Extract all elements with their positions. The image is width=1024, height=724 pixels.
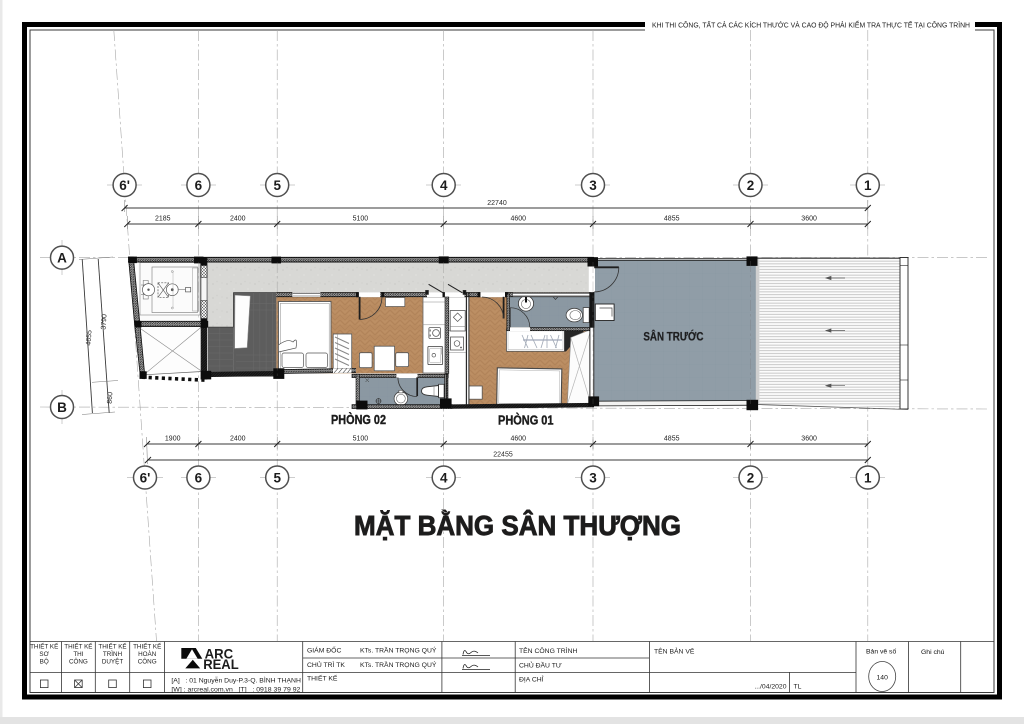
svg-text:SÂN TRƯỚC: SÂN TRƯỚC [643,331,703,344]
svg-text:.../04/2020: .../04/2020 [754,684,786,691]
svg-text:PHÒNG 01: PHÒNG 01 [498,413,554,428]
svg-text:THI: THI [73,651,83,658]
svg-text:3790: 3790 [100,314,108,330]
svg-text:4855: 4855 [664,436,680,443]
svg-text:860: 860 [107,392,115,404]
svg-text:PHÒNG 02: PHÒNG 02 [331,412,386,427]
svg-text:5: 5 [273,470,281,485]
svg-text:[W] : arcreal.com.vn [T] :: [W] : arcreal.com.vn [T] : 0918 39 79 92 [171,687,301,694]
svg-text:6: 6 [195,178,203,193]
svg-text:CHỦ TRÌ TK: CHỦ TRÌ TK [307,660,345,669]
svg-text:1: 1 [864,470,872,485]
svg-text:BỘ: BỘ [40,657,49,666]
svg-text:4600: 4600 [511,436,527,443]
svg-text:ĐỊA CHỈ: ĐỊA CHỈ [519,675,544,684]
svg-text:140: 140 [877,675,889,682]
svg-text:4600: 4600 [511,216,527,223]
svg-text:DUYỆT: DUYỆT [102,657,123,666]
svg-text:REAL: REAL [203,656,239,672]
svg-text:6: 6 [195,470,203,485]
svg-text:2185: 2185 [155,216,171,223]
svg-text:MẶT BẰNG SÂN THƯỢNG: MẶT BẰNG SÂN THƯỢNG [354,510,681,541]
svg-text:A: A [57,250,67,265]
svg-text:SƠ: SƠ [39,651,49,658]
svg-text:[A] : 01 Nguyễn Duy-P.3-Q. B: [A] : 01 Nguyễn Duy-P.3-Q. BÌNH THẠNH [171,676,301,685]
svg-text:1: 1 [864,178,872,193]
svg-text:TÊN BẢN VẼ: TÊN BẢN VẼ [654,647,695,656]
svg-text:Bản vẽ số: Bản vẽ số [866,647,896,656]
svg-text:22455: 22455 [493,452,513,459]
svg-text:4855: 4855 [664,216,680,223]
svg-text:5100: 5100 [353,436,369,443]
svg-text:3600: 3600 [801,436,817,443]
svg-text:HOÀN: HOÀN [138,649,157,658]
svg-text:2: 2 [747,178,755,193]
svg-text:TÊN CÔNG TRÌNH: TÊN CÔNG TRÌNH [519,646,577,655]
svg-text:6': 6' [140,470,151,485]
svg-text:2: 2 [747,470,755,485]
svg-text:TRÌNH: TRÌNH [103,649,123,658]
svg-text:B: B [57,400,67,415]
svg-text:22740: 22740 [487,200,507,207]
svg-text:3600: 3600 [801,216,817,223]
svg-text:6': 6' [119,178,130,193]
svg-text:5100: 5100 [353,216,369,223]
svg-text:4: 4 [440,470,448,485]
svg-text:TL: TL [794,684,802,691]
svg-text:CÔNG: CÔNG [138,657,157,666]
svg-text:3: 3 [589,178,597,193]
svg-text:1900: 1900 [165,436,181,443]
svg-text:2400: 2400 [230,436,246,443]
svg-text:5: 5 [273,178,281,193]
svg-text:Ghi chú: Ghi chú [921,649,945,656]
svg-text:CÔNG: CÔNG [69,657,88,666]
svg-text:KHI THI CÔNG, TẤT CẢ CÁC KÍCH: KHI THI CÔNG, TẤT CẢ CÁC KÍCH THƯỚC VÀ C… [652,20,970,30]
svg-text:4: 4 [440,178,448,193]
svg-text:4655: 4655 [85,330,93,346]
svg-text:3: 3 [589,470,597,485]
svg-text:2400: 2400 [230,216,246,223]
